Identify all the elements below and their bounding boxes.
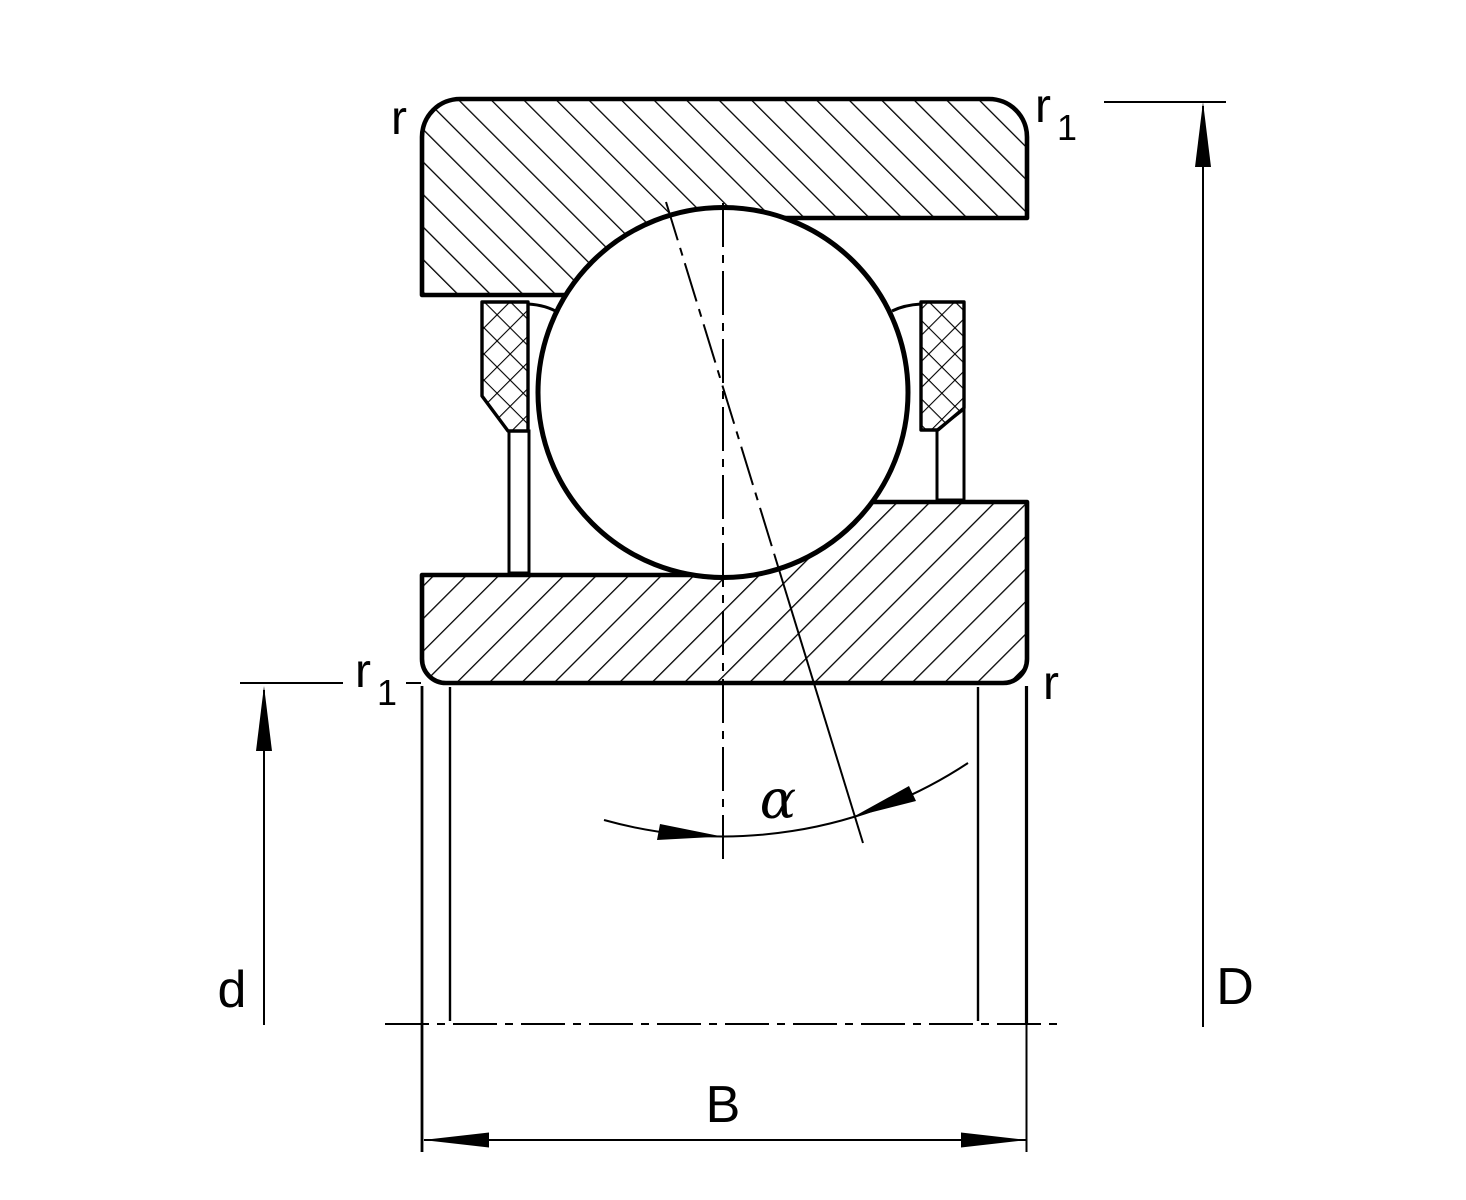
radius-label-mid-left-sub: 1 bbox=[377, 672, 397, 713]
bore-diameter-label: d bbox=[218, 961, 247, 1019]
radius-label-mid-right: r bbox=[1043, 657, 1059, 710]
cage-left-prong bbox=[509, 431, 529, 573]
bearing-diagram: B d D α r r 1 r 1 r bbox=[0, 0, 1466, 1200]
outer-diameter-label: D bbox=[1216, 958, 1254, 1016]
contact-angle-label: α bbox=[760, 768, 796, 831]
radius-label-top-right-sub: 1 bbox=[1057, 107, 1077, 148]
cage-right-crosshatch bbox=[921, 302, 964, 430]
radius-label-top-left: r bbox=[391, 92, 407, 145]
radius-label-mid-left-base: r bbox=[355, 645, 371, 698]
radius-label-top-right-base: r bbox=[1035, 80, 1051, 133]
bearing-diagram-page: B d D α r r 1 r 1 r bbox=[0, 0, 1466, 1200]
width-label: B bbox=[706, 1076, 741, 1134]
